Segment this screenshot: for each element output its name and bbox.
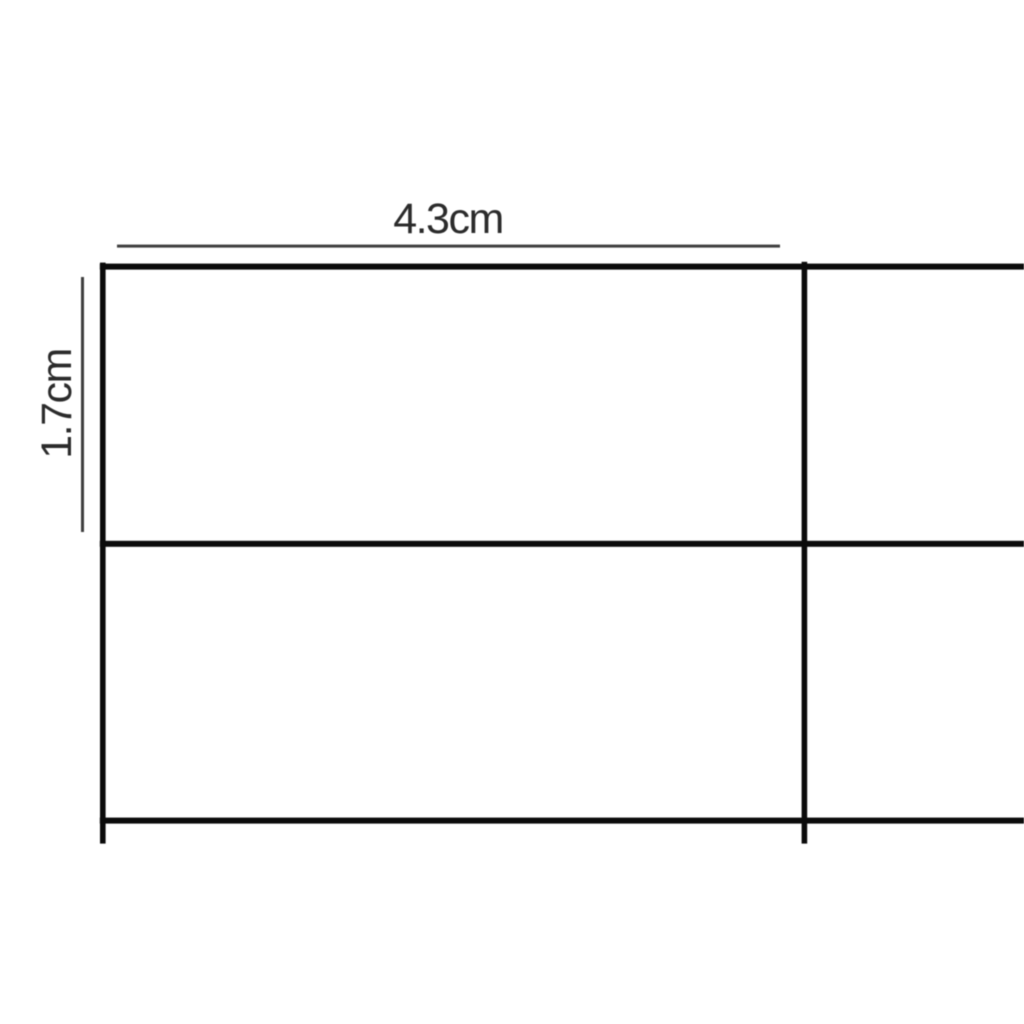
svg-text:1.7cm: 1.7cm [33,349,81,459]
svg-text:4.3cm: 4.3cm [393,195,503,243]
